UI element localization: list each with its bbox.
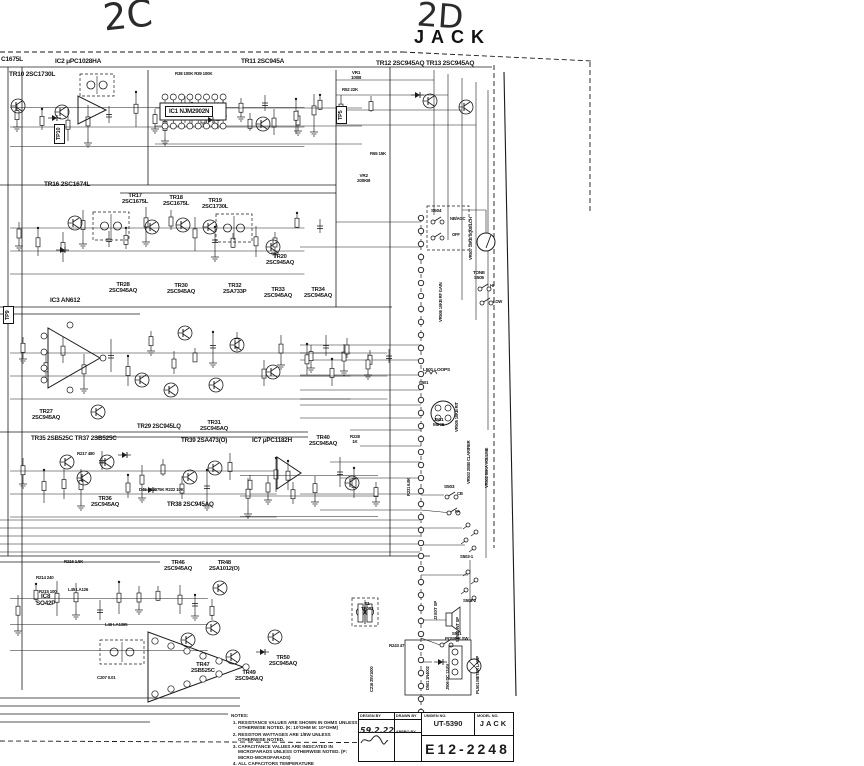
approver-cell bbox=[395, 733, 421, 761]
design-by-label: DESIGN BY bbox=[359, 713, 394, 720]
component-label: TR27 2SC945AQ bbox=[32, 409, 60, 422]
component-label: TR39 2SA473(O) bbox=[181, 438, 227, 445]
bus-wires bbox=[0, 70, 488, 695]
notes-list: RESISTANCE VALUES ARE SHOWN IN OHMS UNLE… bbox=[231, 720, 359, 766]
component-label: TR34 2SC945AQ bbox=[304, 287, 332, 300]
component-texture bbox=[10, 91, 392, 651]
component-label: R243 47 bbox=[389, 644, 404, 649]
component-label: TR48 2SA1012(O) bbox=[209, 560, 240, 573]
component-label: VR507 10KB SQUELCH bbox=[469, 217, 474, 260]
component-label: IC7 μPC1182H bbox=[252, 438, 292, 445]
notes-title: NOTES: bbox=[231, 713, 359, 719]
dc-jack bbox=[449, 646, 462, 679]
component-label: VR503 200B CLARIFIER bbox=[467, 441, 472, 484]
component-label: TP5 bbox=[336, 107, 347, 125]
component-label: IC3 AN612 bbox=[50, 297, 80, 304]
title-block-numbers: UNIDEN NO. UT-5390 MODEL NO. JACK E12-22… bbox=[422, 713, 513, 761]
component-label: TR49 2SC945AQ bbox=[235, 670, 263, 683]
component-label: VR2 200KB bbox=[357, 174, 370, 184]
component-label: R228 1K bbox=[350, 435, 360, 445]
component-label: TR20 2SC945AQ bbox=[266, 254, 294, 267]
component-label: J2 EXT SP bbox=[434, 601, 439, 620]
section-borders bbox=[0, 52, 592, 743]
component-label: IC8 SO42P bbox=[36, 594, 55, 608]
component-label: TR32 2SA733P bbox=[223, 283, 246, 296]
component-label: L501 LOOPS bbox=[423, 368, 450, 373]
component-label: TR18 2SC1675L bbox=[163, 195, 189, 208]
model-no-value: JACK bbox=[475, 719, 513, 735]
component-label: TR30 2SC945AQ bbox=[167, 283, 195, 296]
component-label: TR10 2SC1730L bbox=[9, 71, 55, 78]
component-label: TR29 2SC945LQ bbox=[137, 424, 181, 430]
component-label: CB bbox=[457, 492, 463, 497]
note-item: RESISTANCE VALUES ARE SHOWN IN OHMS UNLE… bbox=[238, 720, 359, 731]
component-label: TR11 2SC945A bbox=[241, 58, 284, 65]
component-label: VR502 50KA VOLUME bbox=[485, 448, 490, 488]
component-label: PA bbox=[455, 510, 460, 515]
component-label: VR506 10KB RF GAIN bbox=[439, 283, 444, 322]
component-label: R215 100 bbox=[39, 590, 56, 595]
component-label: IC1 NJM2902N bbox=[165, 106, 213, 117]
component-label: S503 bbox=[444, 485, 454, 490]
component-label: C207 0.01 bbox=[97, 676, 115, 681]
component-label: R216 1.5K bbox=[64, 560, 83, 565]
note-item: CAPACITANCE VALUES ARE INDICATED IN MICR… bbox=[238, 744, 359, 761]
component-label: LOW bbox=[493, 300, 502, 305]
component-label: TR47 2SB525C bbox=[191, 662, 215, 675]
component-label: NB/AGC bbox=[450, 217, 465, 222]
component-label: R38 100K R39 100K bbox=[175, 72, 212, 77]
component-label: VR1 100B bbox=[351, 71, 361, 81]
component-label: D501 1N4002 bbox=[426, 666, 431, 690]
component-label: TR16 2SC1674L bbox=[44, 181, 90, 188]
component-label: TR38 2SC945AQ bbox=[167, 502, 214, 509]
component-label: T1 TF083 bbox=[361, 602, 373, 612]
component-label: TR40 2SC945AQ bbox=[309, 435, 337, 448]
component-label: C501 bbox=[419, 381, 428, 386]
component-label: R231 6.8K bbox=[407, 478, 412, 496]
component-label: S502-2 bbox=[463, 599, 476, 604]
note-item: RESISTOR WATTAGES ARE 1/8W UNLESS OTHERW… bbox=[238, 732, 359, 743]
component-label: S503-1 bbox=[460, 555, 473, 560]
component-label: D45 1S2075K R222 10K bbox=[139, 488, 184, 493]
component-label: J506 DC 13.8V bbox=[446, 664, 451, 690]
drawing-number: E12-2248 bbox=[422, 736, 513, 761]
component-label: OFF bbox=[452, 233, 460, 238]
schematic-drawing bbox=[0, 0, 864, 766]
designer-signature bbox=[359, 733, 394, 761]
component-label: VR505 10KB RIT bbox=[455, 402, 460, 432]
component-label: TP9 bbox=[3, 307, 14, 325]
component-label: TR12 2SC945AQ TR13 2SC945AQ bbox=[376, 60, 474, 67]
notes-block: NOTES: RESISTANCE VALUES ARE SHOWN IN OH… bbox=[231, 713, 359, 766]
component-label: TR28 2SC945AQ bbox=[109, 282, 137, 295]
drawn-by-label: DRAWN BY bbox=[395, 713, 421, 720]
component-label: TR17 2SC1675L bbox=[122, 193, 148, 206]
component-label: TONE S505 bbox=[473, 271, 485, 281]
schematic-page: 2C 2D JACK C1675LIC2 μPC1028HATR10 2SC17… bbox=[0, 0, 864, 766]
component-label: C1675L bbox=[1, 56, 23, 63]
component-label: L45 LA126 bbox=[68, 588, 88, 593]
component-label: TR33 2SC945AQ bbox=[264, 287, 292, 300]
component-label: TR36 2SC945AQ bbox=[91, 496, 119, 509]
component-label: TP10 bbox=[54, 124, 65, 144]
note-item: ALL CAPACITORS TEMPERATURE CHARACTERISTI… bbox=[238, 761, 359, 766]
component-label: IC2 μPC1028HA bbox=[55, 58, 101, 65]
component-label: L46 LA1365 bbox=[105, 623, 127, 628]
title-block-signatures: DESIGN BY 59.2.22 DRAWN BY APPRO BY bbox=[359, 713, 422, 761]
coil-symbols bbox=[80, 74, 437, 664]
signature-scribble bbox=[359, 733, 389, 747]
component-label: HI bbox=[490, 284, 494, 289]
component-label: SP501 INT SP bbox=[456, 617, 461, 642]
transistor-symbols bbox=[11, 94, 473, 664]
component-label: C216 25V1000 bbox=[370, 666, 375, 692]
component-label: R65 15K bbox=[370, 152, 386, 157]
order-no-value: UT-5390 bbox=[422, 719, 474, 735]
component-label: TR46 2SC945AQ bbox=[164, 560, 192, 573]
component-label: TR31 2SC945AQ bbox=[200, 420, 228, 433]
diode-symbols bbox=[48, 92, 447, 665]
component-label: PL501 METER LAMP bbox=[476, 656, 481, 694]
component-label: TR50 2SC945AQ bbox=[269, 655, 297, 668]
component-label: R52 22K bbox=[342, 88, 358, 93]
component-label: R217 480 bbox=[77, 452, 94, 457]
component-label: S504 bbox=[431, 209, 441, 214]
component-label: R214 240 bbox=[36, 576, 53, 581]
title-block: DESIGN BY 59.2.22 DRAWN BY APPRO BY UNID… bbox=[358, 712, 514, 762]
component-label: TR35 2SB525C TR37 2SB525C bbox=[31, 436, 117, 443]
meter bbox=[462, 210, 495, 251]
component-label: J501 MIKE bbox=[433, 418, 444, 428]
component-label: TR19 2SC1730L bbox=[202, 198, 228, 211]
